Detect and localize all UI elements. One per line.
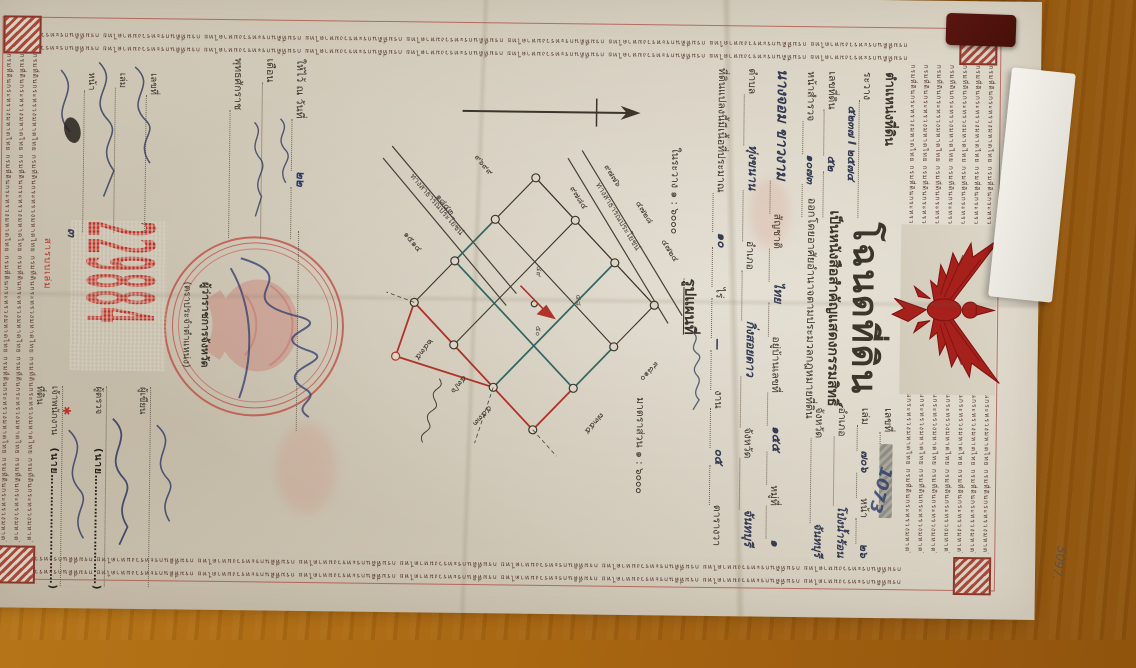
holder-name-line: นางจอม ขาวงาม สัญชาติ ไทย อยู่บ้านเลขที่… — [765, 69, 795, 547]
corner-ornament-top-right — [953, 557, 991, 595]
serial-number: 229884 — [69, 220, 167, 371]
photo-of-land-deed: { "photo": { "pencil_note": "5097." }, "… — [0, 0, 1136, 640]
issue-prefix: ให้ไว้ ณ วันที่ — [292, 59, 310, 119]
svg-text:๕๐: ๕๐ — [534, 326, 543, 337]
nationality-value: ไทย — [768, 282, 787, 303]
area-rai-value: ๑๐ — [712, 232, 731, 247]
holder-name: นางจอม ขาวงาม — [770, 69, 795, 181]
issue-date-handwriting-scribble — [233, 112, 294, 233]
address-label: อยู่บ้านเลขที่ — [767, 336, 785, 393]
area-ngan-value: — — [711, 338, 725, 350]
svg-text:๔๙: ๔๙ — [535, 266, 544, 278]
wa-label: ตารางวา — [708, 505, 726, 546]
ngan-label: งาน — [710, 390, 727, 408]
north-arrow — [456, 91, 642, 133]
amphoe-label: อำเภอ — [742, 241, 759, 270]
land-title-deed-document: กรมที่ดินกระทรวงมหาดไทย กรมที่ดินกระทรวง… — [0, 0, 1042, 620]
svg-text:๙๘๑๐: ๙๘๑๐ — [638, 359, 661, 383]
road-label: ทางสาธารณประโยชน์ — [408, 171, 466, 237]
serial-ink-mark: ๓ — [62, 228, 83, 237]
dark-object-on-table — [945, 13, 1016, 47]
svg-text:๒๔๓๕: ๒๔๓๕ — [412, 337, 435, 363]
svg-text:๔๘: ๔๘ — [574, 294, 583, 306]
province-label: จังหวัด — [739, 427, 756, 458]
svg-text:๔๗๒๘: ๔๗๒๘ — [633, 199, 655, 226]
moo-label: หมู่ที่ — [766, 485, 783, 506]
month-label: เดือน — [262, 58, 279, 82]
area-line: ที่ดินแปลงนี้มีเนื้อที่ประมาณ ๑๐ ไร่ — ง… — [708, 68, 733, 546]
governor-signature — [199, 238, 351, 430]
svg-text:๑๕๑๔: ๑๕๑๔ — [401, 230, 424, 255]
rai-label: ไร่ — [711, 287, 728, 298]
cadastral-map: ทางสาธารณประโยชน์ ทางสาธารณประโยชน์ — [378, 142, 688, 462]
amphoe-value: กิ่งสอยดาว — [740, 321, 760, 377]
svg-text:๔๗๒๔: ๔๗๒๔ — [659, 238, 681, 265]
svg-text:๕๕๓๓: ๕๕๓๓ — [470, 403, 494, 428]
area-wa-value: ๐๕ — [709, 448, 728, 465]
serial-halftone-overlay — [69, 220, 167, 371]
area-prefix: ที่ดินแปลงนี้มีเนื้อที่ประมาณ — [713, 68, 732, 193]
moo-value: ๑ — [765, 539, 784, 547]
address-value: ๑๕๕ — [766, 426, 785, 452]
tambon-label: ตำบล — [744, 68, 761, 94]
svg-text:๙๖๙๙: ๙๖๙๙ — [472, 153, 495, 178]
official-signatures-ink — [49, 394, 181, 586]
registry-red-note: สารบบเล่ม — [39, 238, 55, 290]
svg-text:๗๓๕๕: ๗๓๕๕ — [581, 411, 606, 437]
province-value: จันทบุรี — [738, 509, 757, 546]
year-label: พุทธศักราช — [230, 58, 248, 110]
border-pattern-left: กรมที่ดินกระทรวงมหาดไทย กรมที่ดินกระทรวง… — [41, 18, 907, 65]
holder-location-line: ตำบล ทุ่งขนาน อำเภอ กิ่งสอยดาว จังหวัด จ… — [738, 68, 763, 546]
svg-text:๕๓/๖: ๕๓/๖ — [448, 373, 469, 395]
ink-offset-stain — [276, 423, 337, 514]
registry-handwriting-ink — [13, 45, 165, 227]
